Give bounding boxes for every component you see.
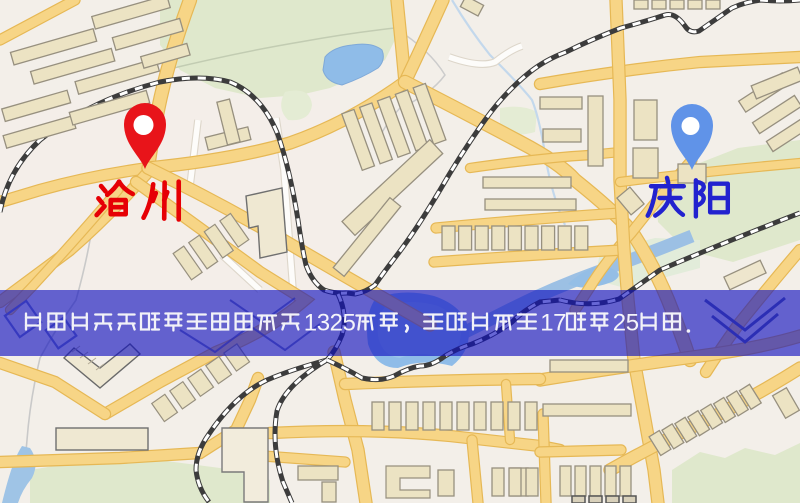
svg-text:3: 3 (317, 310, 330, 337)
svg-text:1: 1 (540, 310, 553, 337)
svg-text:5: 5 (343, 310, 356, 337)
svg-text:7: 7 (553, 310, 566, 337)
svg-text:2: 2 (330, 310, 343, 337)
svg-text:2: 2 (613, 310, 626, 337)
svg-text:1: 1 (304, 310, 317, 337)
svg-text:5: 5 (626, 310, 639, 337)
